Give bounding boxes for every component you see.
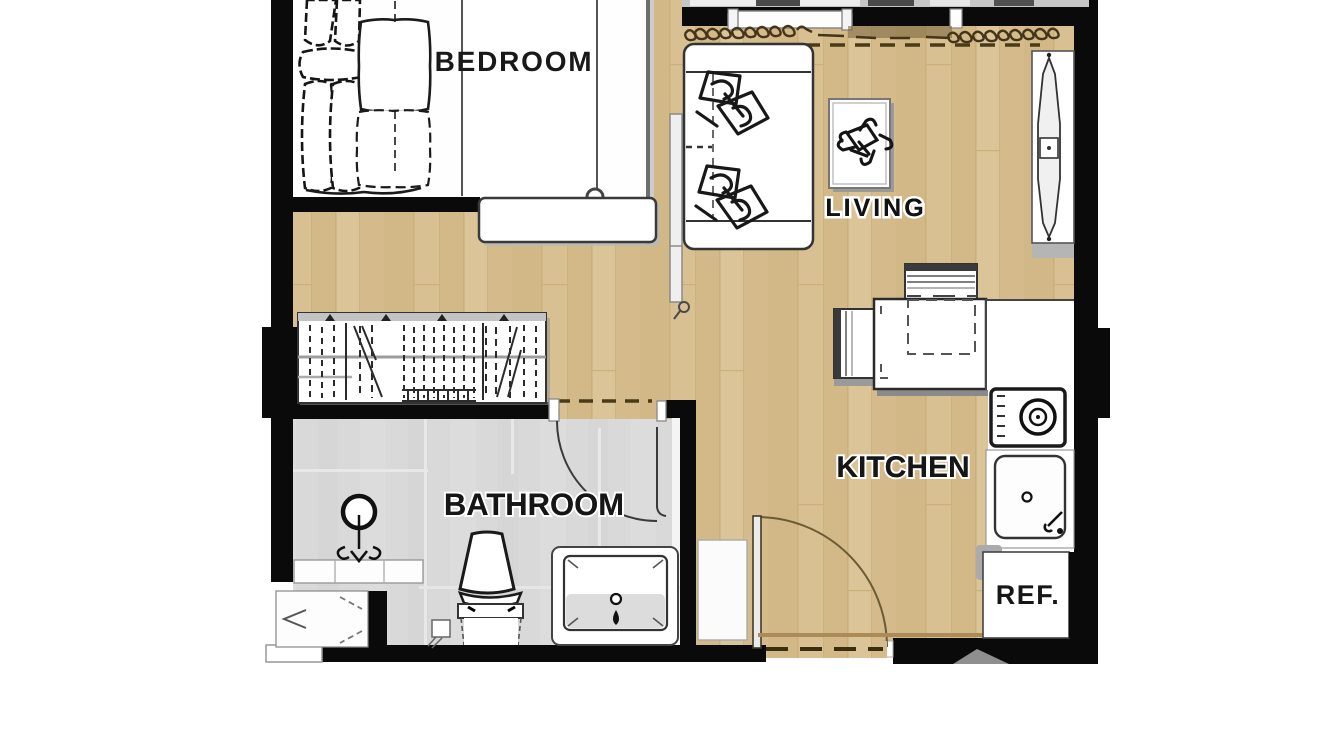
svg-text:BATHROOM: BATHROOM bbox=[444, 487, 624, 522]
svg-text:BEDROOM: BEDROOM bbox=[435, 46, 594, 77]
svg-text:KITCHEN: KITCHEN bbox=[836, 451, 969, 484]
svg-text:LIVING: LIVING bbox=[825, 194, 926, 222]
svg-text:REF.: REF. bbox=[996, 580, 1061, 610]
